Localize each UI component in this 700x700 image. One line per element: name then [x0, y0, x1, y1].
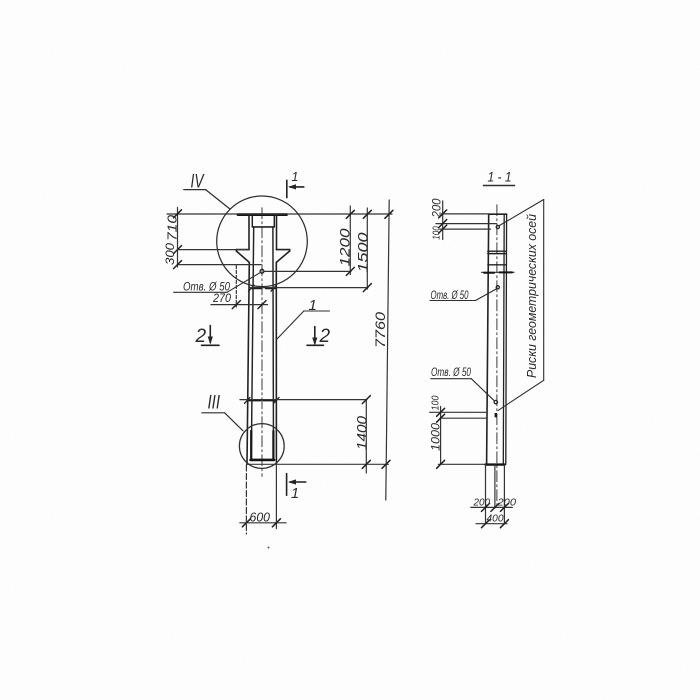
- svg-text:1: 1: [291, 486, 299, 502]
- svg-text:1200: 1200: [338, 228, 353, 267]
- svg-text:Риски геометрических осей: Риски геометрических осей: [524, 214, 539, 378]
- svg-text:600: 600: [250, 510, 271, 525]
- svg-text:400: 400: [487, 513, 504, 525]
- svg-text:1500: 1500: [356, 232, 371, 273]
- svg-text:1: 1: [309, 297, 317, 314]
- svg-text:270: 270: [212, 293, 232, 305]
- svg-text:200: 200: [473, 497, 491, 509]
- svg-text:Отв. Ø 50: Отв. Ø 50: [183, 282, 230, 294]
- svg-text:IV: IV: [191, 172, 206, 193]
- svg-text:1400: 1400: [355, 415, 370, 450]
- svg-text:III: III: [208, 393, 221, 414]
- svg-text:1000: 1000: [431, 422, 443, 451]
- svg-text:200: 200: [432, 198, 444, 219]
- svg-text:2: 2: [195, 326, 207, 347]
- svg-text:7760: 7760: [373, 311, 388, 348]
- svg-text:200: 200: [496, 497, 516, 509]
- svg-text:100: 100: [431, 226, 443, 240]
- svg-text:1 - 1: 1 - 1: [488, 170, 512, 185]
- svg-text:Отв. Ø 50: Отв. Ø 50: [431, 367, 471, 379]
- svg-text:100: 100: [430, 395, 442, 410]
- svg-text:710: 710: [165, 214, 180, 241]
- svg-text:300: 300: [163, 243, 177, 265]
- svg-text:2: 2: [319, 326, 331, 347]
- svg-text:1: 1: [292, 170, 299, 184]
